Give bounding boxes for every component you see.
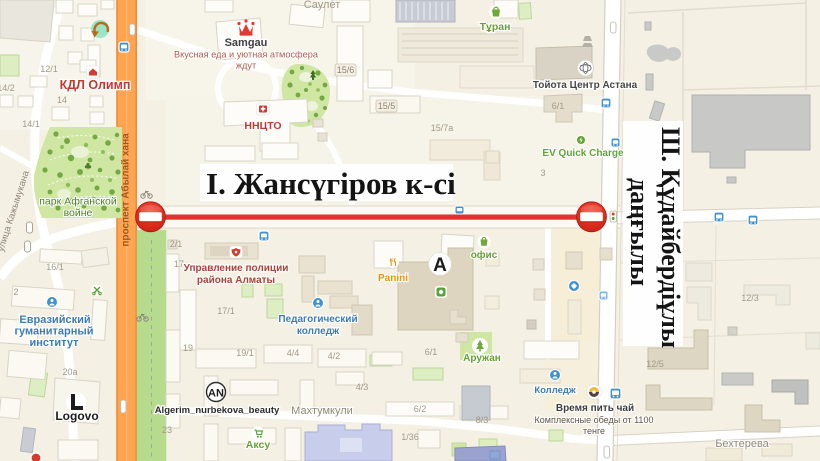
svg-text:Тойота Центр Астана: Тойота Центр Астана bbox=[533, 80, 638, 91]
svg-text:4/4: 4/4 bbox=[287, 348, 300, 358]
svg-text:офис: офис bbox=[471, 249, 498, 261]
svg-text:12/1: 12/1 bbox=[40, 64, 58, 74]
svg-text:Бехтерева: Бехтерева bbox=[715, 438, 769, 450]
svg-text:EV Quick Charge: EV Quick Charge bbox=[542, 148, 624, 159]
svg-text:16/1: 16/1 bbox=[46, 262, 64, 272]
svg-text:Аксу: Аксу bbox=[246, 439, 271, 451]
svg-text:І. Жансүгіров к-сі: І. Жансүгіров к-сі bbox=[206, 166, 456, 201]
svg-text:ждут: ждут bbox=[236, 61, 257, 71]
svg-text:19: 19 bbox=[183, 343, 193, 353]
svg-text:14: 14 bbox=[57, 95, 67, 105]
svg-text:войне: войне bbox=[64, 207, 93, 219]
svg-text:парк Афганской: парк Афганской bbox=[39, 196, 117, 208]
svg-text:Комплексные обеды от 1100: Комплексные обеды от 1100 bbox=[535, 415, 654, 425]
svg-text:A: A bbox=[433, 255, 447, 276]
svg-text:14/1: 14/1 bbox=[22, 119, 40, 129]
svg-text:Logovo: Logovo bbox=[55, 409, 98, 423]
svg-text:Ш. Құдайбердіұлы: Ш. Құдайбердіұлы bbox=[656, 127, 685, 348]
svg-text:Аружан: Аружан bbox=[463, 353, 501, 364]
svg-text:1/36: 1/36 bbox=[401, 432, 419, 442]
svg-text:23: 23 bbox=[162, 425, 172, 435]
svg-text:Algerim_nurbekova_beauty: Algerim_nurbekova_beauty bbox=[155, 405, 280, 416]
svg-text:6/1: 6/1 bbox=[552, 101, 565, 111]
svg-text:КДЛ Олимп: КДЛ Олимп bbox=[60, 78, 131, 92]
svg-text:района Алматы: района Алматы bbox=[197, 275, 275, 286]
svg-text:2: 2 bbox=[13, 287, 18, 297]
svg-text:12/5: 12/5 bbox=[646, 359, 664, 369]
svg-text:6/1: 6/1 bbox=[425, 347, 438, 357]
svg-text:15/5: 15/5 bbox=[378, 101, 396, 111]
svg-text:ННЦТО: ННЦТО bbox=[244, 120, 281, 132]
svg-text:6/2: 6/2 bbox=[414, 404, 427, 414]
svg-text:4/3: 4/3 bbox=[356, 382, 369, 392]
svg-text:даңғылы: даңғылы bbox=[625, 178, 654, 286]
svg-text:8/3: 8/3 bbox=[476, 415, 489, 425]
svg-text:гуманитарный: гуманитарный bbox=[14, 326, 93, 338]
svg-text:17/1: 17/1 bbox=[217, 306, 235, 316]
svg-text:Вкусная еда и уютная атмосфера: Вкусная еда и уютная атмосфера bbox=[174, 50, 319, 60]
svg-text:Panini: Panini bbox=[378, 273, 408, 284]
svg-text:Время пить чай: Время пить чай bbox=[556, 403, 634, 414]
svg-text:Колледж: Колледж bbox=[534, 385, 576, 396]
svg-text:Евразийский: Евразийский bbox=[19, 314, 90, 326]
svg-text:Управление полиции: Управление полиции bbox=[184, 263, 289, 274]
svg-text:3: 3 bbox=[540, 168, 545, 178]
svg-text:14/2: 14/2 bbox=[0, 83, 15, 93]
svg-text:Samgau: Samgau bbox=[225, 37, 268, 49]
svg-text:тенге: тенге bbox=[583, 426, 605, 436]
svg-text:17: 17 bbox=[174, 259, 184, 269]
svg-text:Махтумкули: Махтумкули bbox=[291, 405, 353, 417]
svg-text:20а: 20а bbox=[62, 367, 77, 377]
svg-text:Саулет: Саулет bbox=[304, 0, 341, 11]
svg-text:Педагогический: Педагогический bbox=[278, 314, 357, 325]
svg-text:институт: институт bbox=[30, 337, 80, 349]
svg-text:проспект Абылай хана: проспект Абылай хана bbox=[120, 133, 132, 247]
svg-text:15/7а: 15/7а bbox=[431, 123, 454, 133]
svg-text:колледж: колледж bbox=[297, 326, 340, 337]
svg-text:Тұран: Тұран bbox=[480, 21, 511, 33]
svg-text:19/1: 19/1 bbox=[236, 348, 254, 358]
svg-text:2/1: 2/1 bbox=[170, 239, 183, 249]
svg-text:12/3: 12/3 bbox=[741, 293, 759, 303]
svg-text:15/6: 15/6 bbox=[337, 65, 355, 75]
svg-text:4/2: 4/2 bbox=[328, 351, 341, 361]
svg-text:AN: AN bbox=[208, 388, 224, 400]
